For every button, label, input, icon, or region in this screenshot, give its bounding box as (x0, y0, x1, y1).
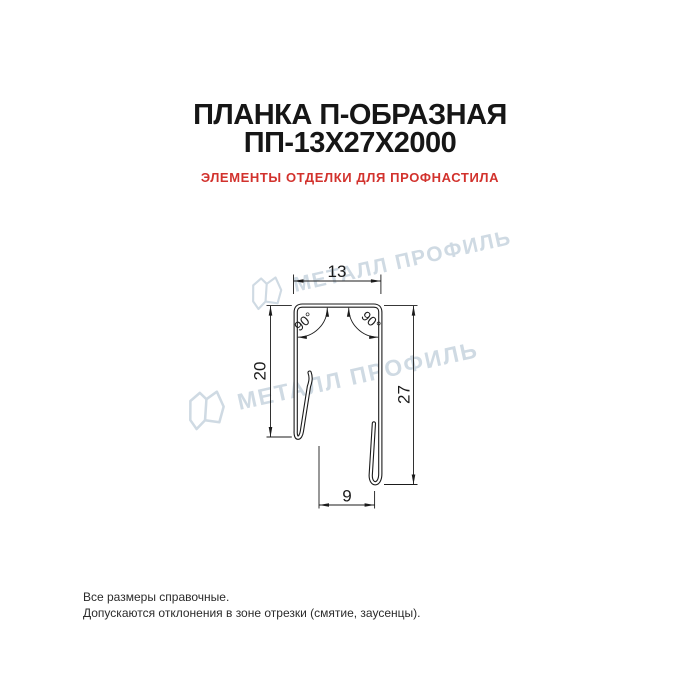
page-title-line1: ПЛАНКА П-ОБРАЗНАЯ (0, 101, 700, 129)
dimension-label-right-height: 27 (395, 385, 414, 404)
footer-notes: Все размеры справочные. Допускаются откл… (83, 590, 420, 621)
footer-note-line1: Все размеры справочные. (83, 590, 420, 606)
dimension-label-left-height: 20 (251, 362, 270, 381)
profile-cross-section (296, 306, 381, 484)
header: ПЛАНКА П-ОБРАЗНАЯ ПП-13Х27Х2000 ЭЛЕМЕНТЫ… (0, 101, 700, 185)
page-title-line2: ПП-13Х27Х2000 (0, 129, 700, 157)
page-subtitle: ЭЛЕМЕНТЫ ОТДЕЛКИ ДЛЯ ПРОФНАСТИЛА (0, 170, 700, 185)
dimension-label-top-width: 13 (328, 262, 347, 281)
product-drawing-page: МЕТАЛЛ ПРОФИЛЬ МЕТАЛЛ ПРОФИЛЬ 13 (0, 0, 700, 700)
dimension-label-bottom-width: 9 (342, 487, 351, 506)
dimension-left-height (267, 306, 292, 437)
footer-note-line2: Допускаются отклонения в зоне отрезки (с… (83, 606, 420, 622)
